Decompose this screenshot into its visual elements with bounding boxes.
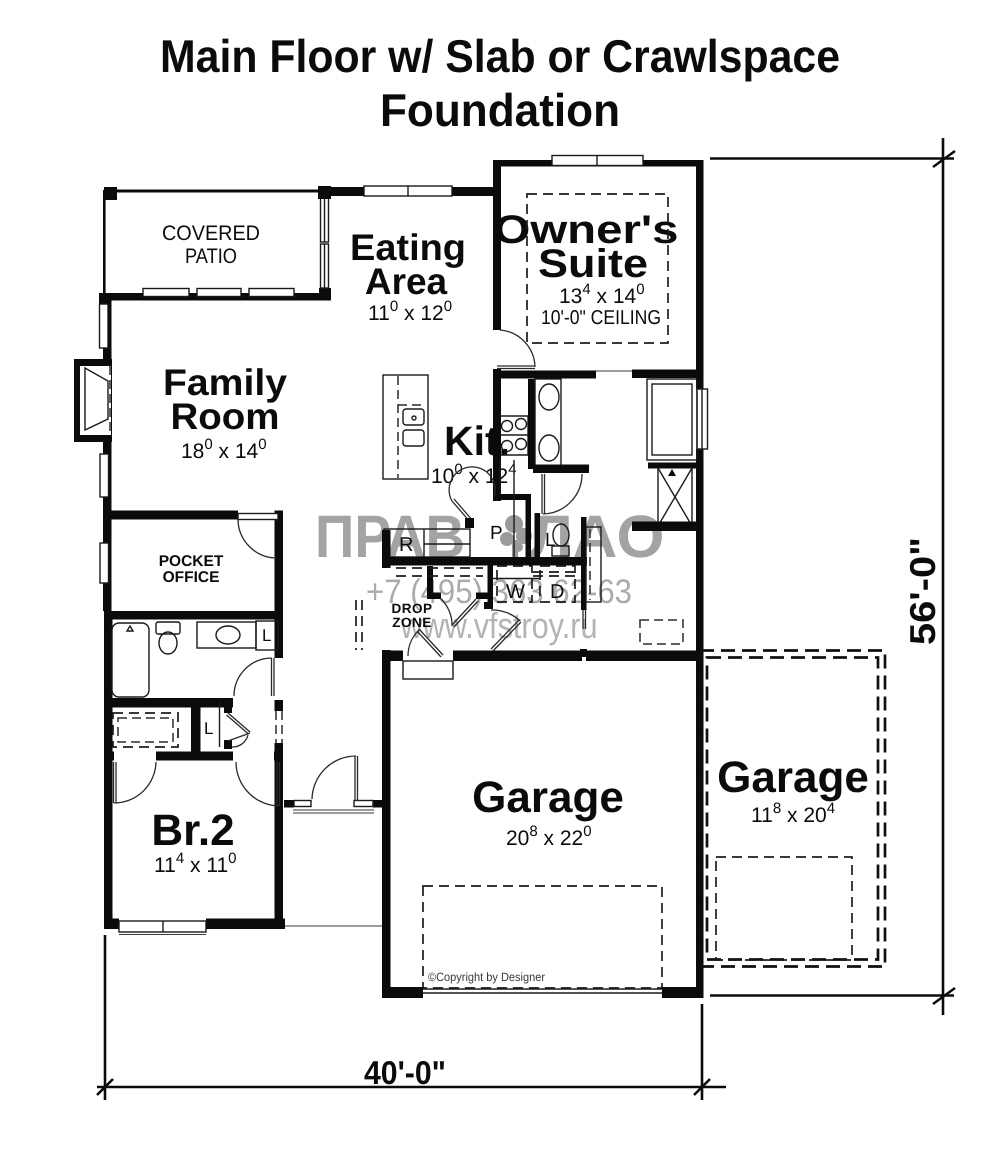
svg-text:134 x 140: 134 x 140 — [559, 281, 645, 308]
svg-text:©Copyright by Designer: ©Copyright by Designer — [428, 970, 545, 984]
svg-text:Area: Area — [365, 261, 448, 302]
svg-text:COVERED: COVERED — [162, 222, 260, 245]
svg-text:Garage: Garage — [717, 753, 869, 802]
svg-text:Foundation: Foundation — [380, 84, 620, 136]
svg-text:56'-0": 56'-0" — [902, 537, 943, 645]
svg-text:L: L — [204, 719, 213, 738]
svg-text:208 x 220: 208 x 220 — [506, 823, 592, 850]
svg-text:Br.2: Br.2 — [151, 806, 234, 855]
svg-text:D: D — [550, 581, 564, 603]
svg-text:DROP: DROP — [391, 601, 432, 616]
svg-text:114 x 110: 114 x 110 — [154, 850, 236, 877]
svg-text:180 x 140: 180 x 140 — [181, 436, 267, 463]
svg-text:PATIO: PATIO — [185, 245, 237, 268]
svg-text:10'-0" CEILING: 10'-0" CEILING — [541, 307, 661, 329]
svg-text:P: P — [490, 523, 503, 544]
svg-text:118 x 204: 118 x 204 — [751, 800, 835, 827]
svg-text:OFFICE: OFFICE — [163, 569, 220, 586]
svg-text:100 x 124: 100 x 124 — [431, 461, 517, 488]
svg-text:Main Floor w/ Slab or Crawlspa: Main Floor w/ Slab or Crawlspace — [160, 30, 840, 82]
svg-text:Suite: Suite — [538, 242, 648, 286]
svg-text:ZONE: ZONE — [392, 615, 432, 630]
svg-text:R: R — [399, 534, 413, 556]
svg-text:POCKET: POCKET — [159, 553, 224, 570]
svg-text:Garage: Garage — [472, 773, 624, 822]
svg-text:40'-0": 40'-0" — [364, 1054, 446, 1091]
svg-text:110 x 120: 110 x 120 — [368, 298, 452, 325]
svg-text:Room: Room — [171, 396, 280, 437]
svg-text:L: L — [262, 626, 271, 645]
svg-text:W: W — [506, 581, 525, 603]
